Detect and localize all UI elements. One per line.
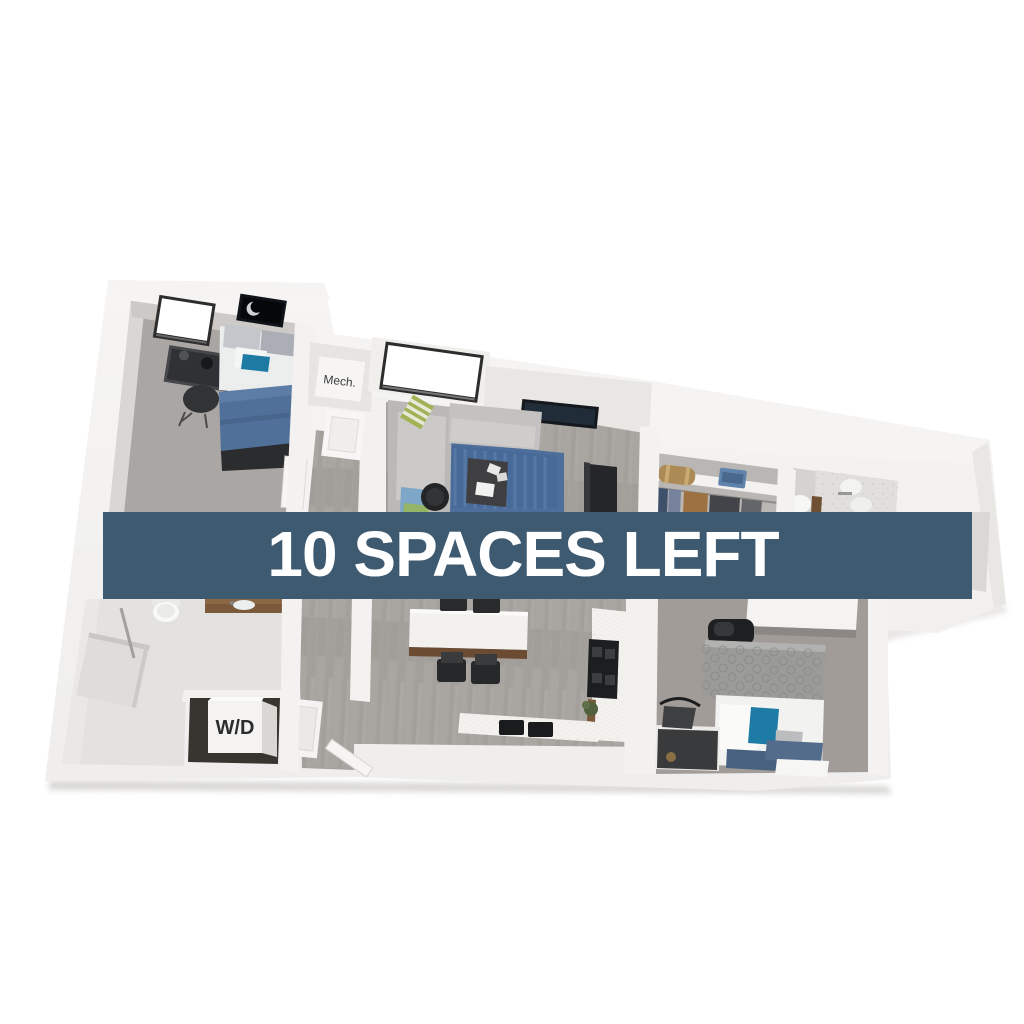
- svg-text:10 SPACES LEFT: 10 SPACES LEFT: [267, 518, 779, 590]
- svg-text:W/D: W/D: [216, 717, 255, 739]
